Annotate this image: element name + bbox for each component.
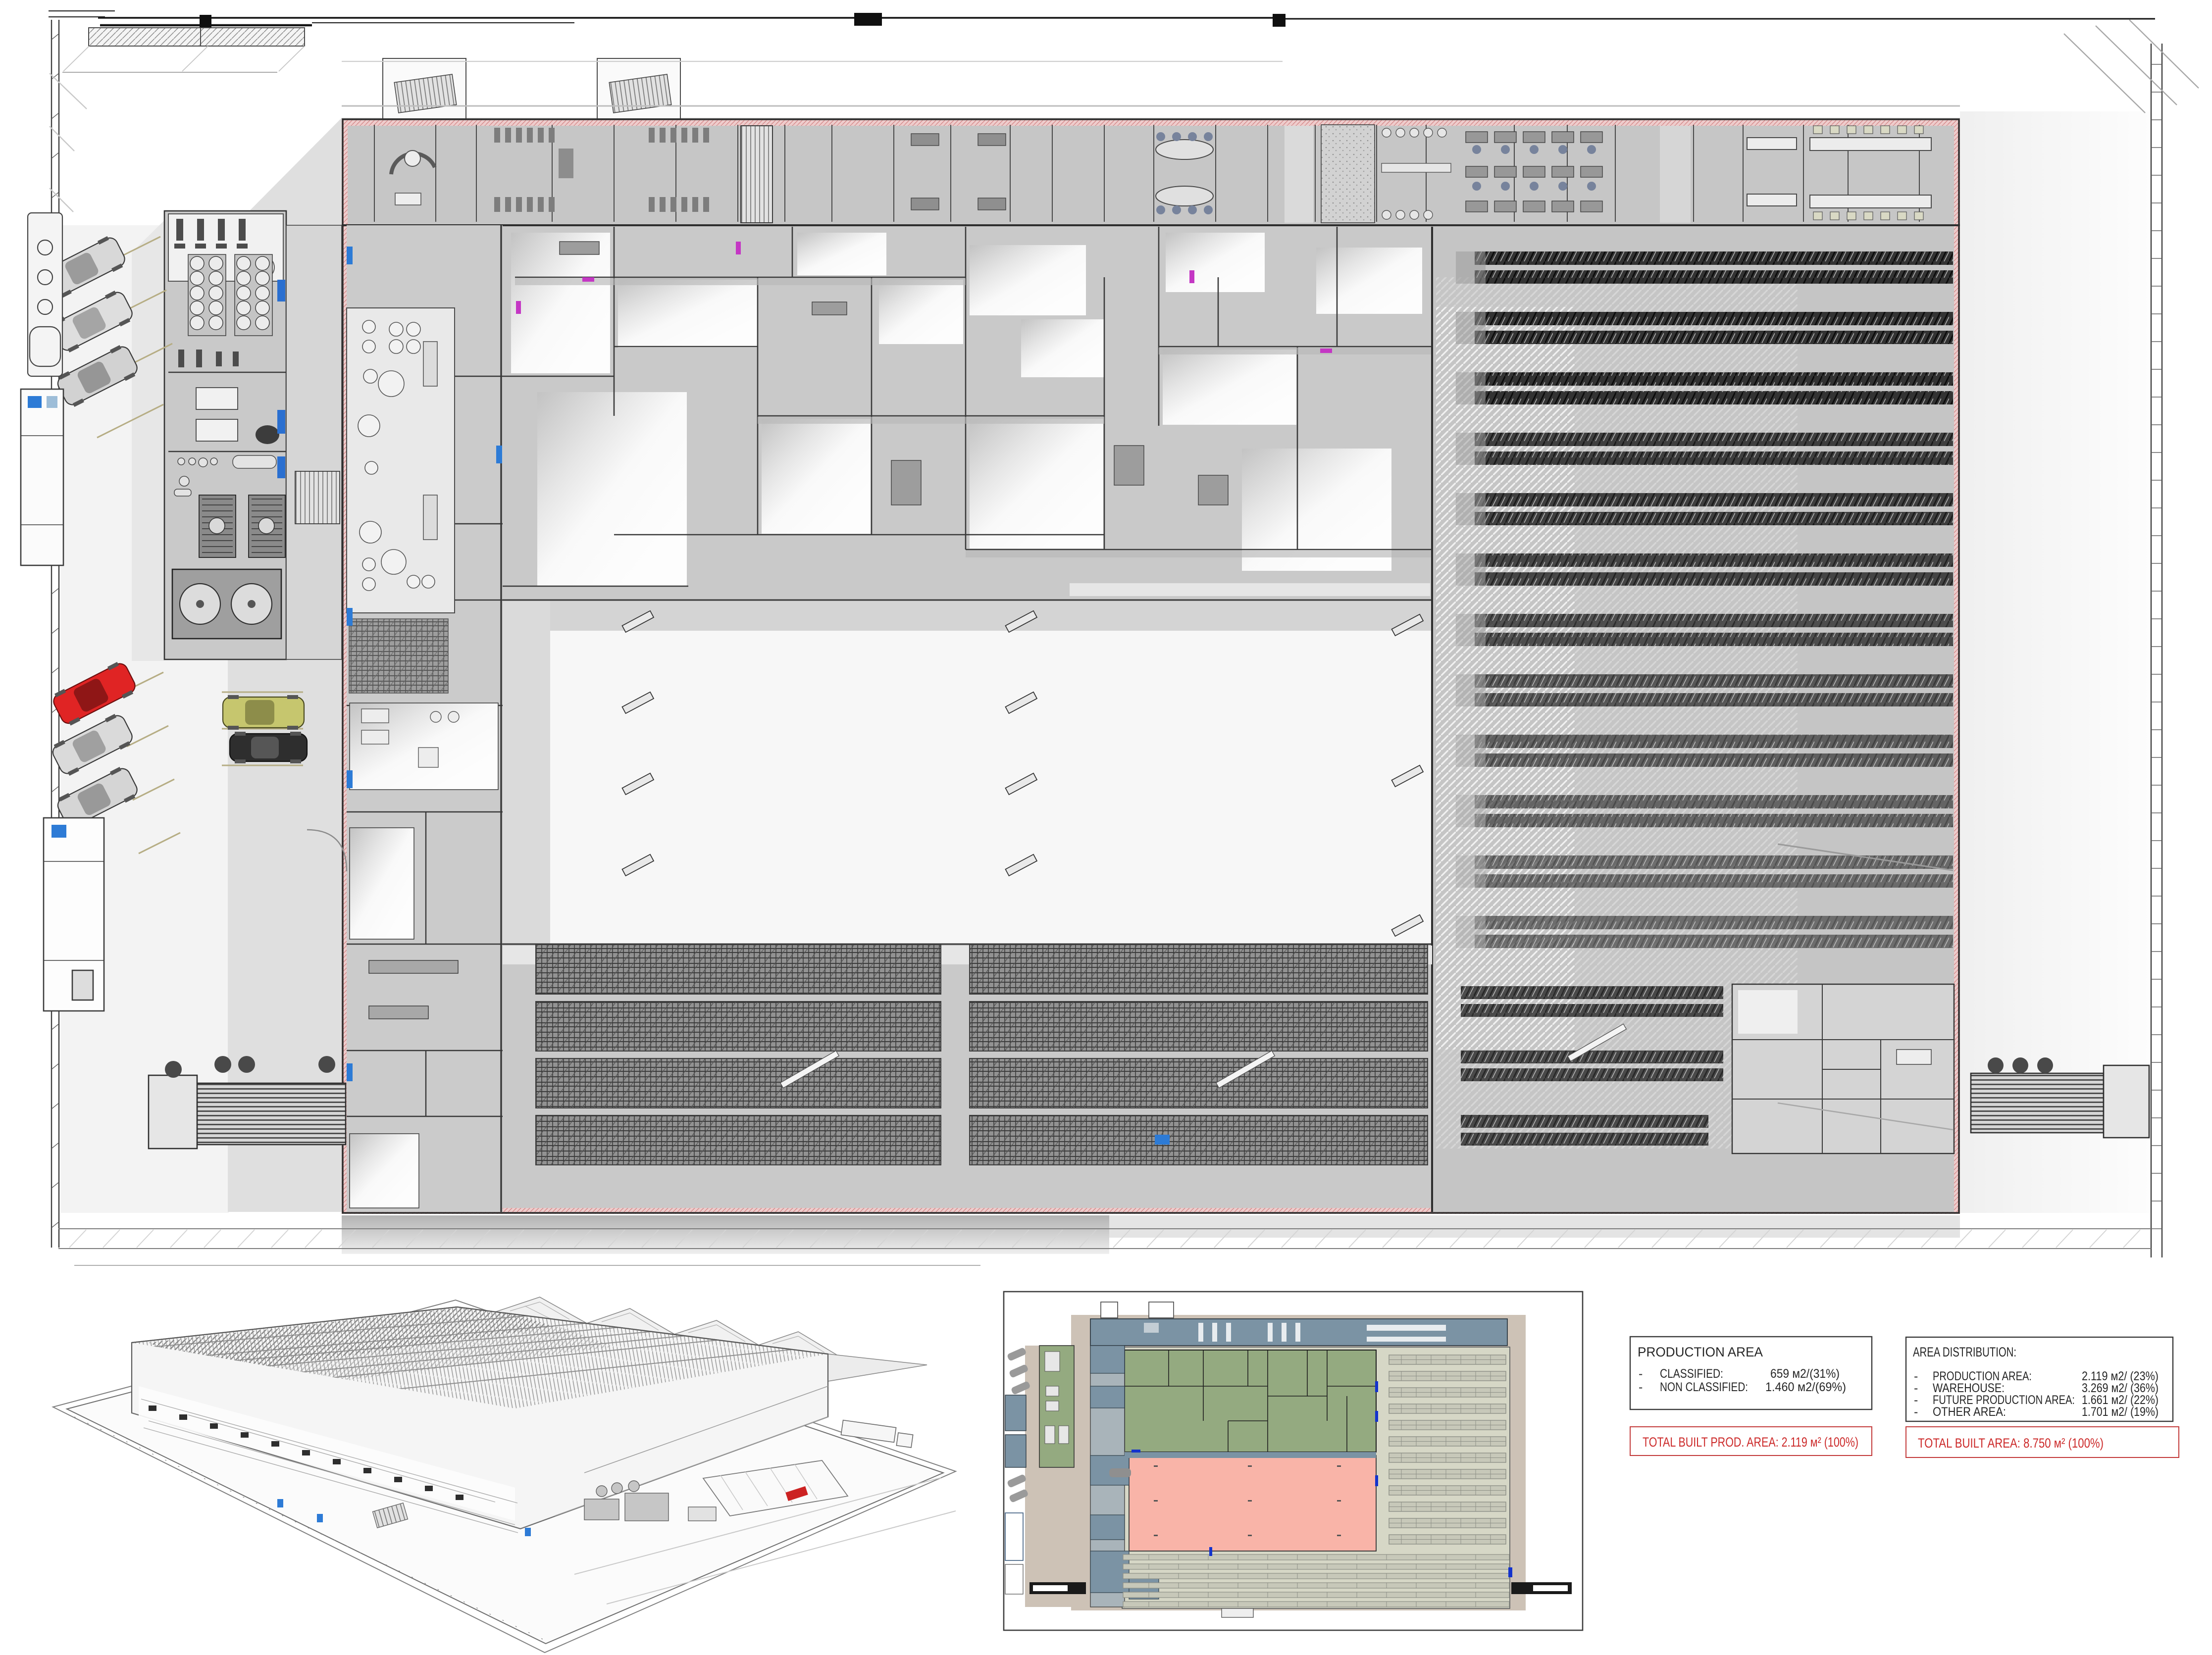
svg-text:TOTAL BUILT AREA: 8.750 м² (10: TOTAL BUILT AREA: 8.750 м² (100%) (1918, 1436, 2104, 1451)
svg-text:NON CLASSIFIED:: NON CLASSIFIED: (1660, 1380, 1748, 1394)
svg-text:659 м2/(31%): 659 м2/(31%) (1770, 1367, 1840, 1381)
svg-text:AREA DISTRIBUTION:: AREA DISTRIBUTION: (1913, 1345, 2016, 1359)
svg-text:1.460 м2/(69%): 1.460 м2/(69%) (1765, 1380, 1846, 1394)
svg-text:PRODUCTION AREA: PRODUCTION AREA (1638, 1345, 1763, 1359)
svg-text:TOTAL BUILT PROD. AREA: 2.119: TOTAL BUILT PROD. AREA: 2.119 м² (100%) (1643, 1435, 1858, 1450)
svg-text:OTHER AREA:: OTHER AREA: (1933, 1405, 2006, 1419)
svg-text:CLASSIFIED:: CLASSIFIED: (1660, 1367, 1723, 1381)
svg-text:-: - (1639, 1380, 1643, 1394)
svg-text:-: - (1914, 1405, 1918, 1419)
svg-text:-: - (1639, 1367, 1643, 1381)
svg-text:1.701 м2/ (19%): 1.701 м2/ (19%) (2082, 1405, 2159, 1419)
